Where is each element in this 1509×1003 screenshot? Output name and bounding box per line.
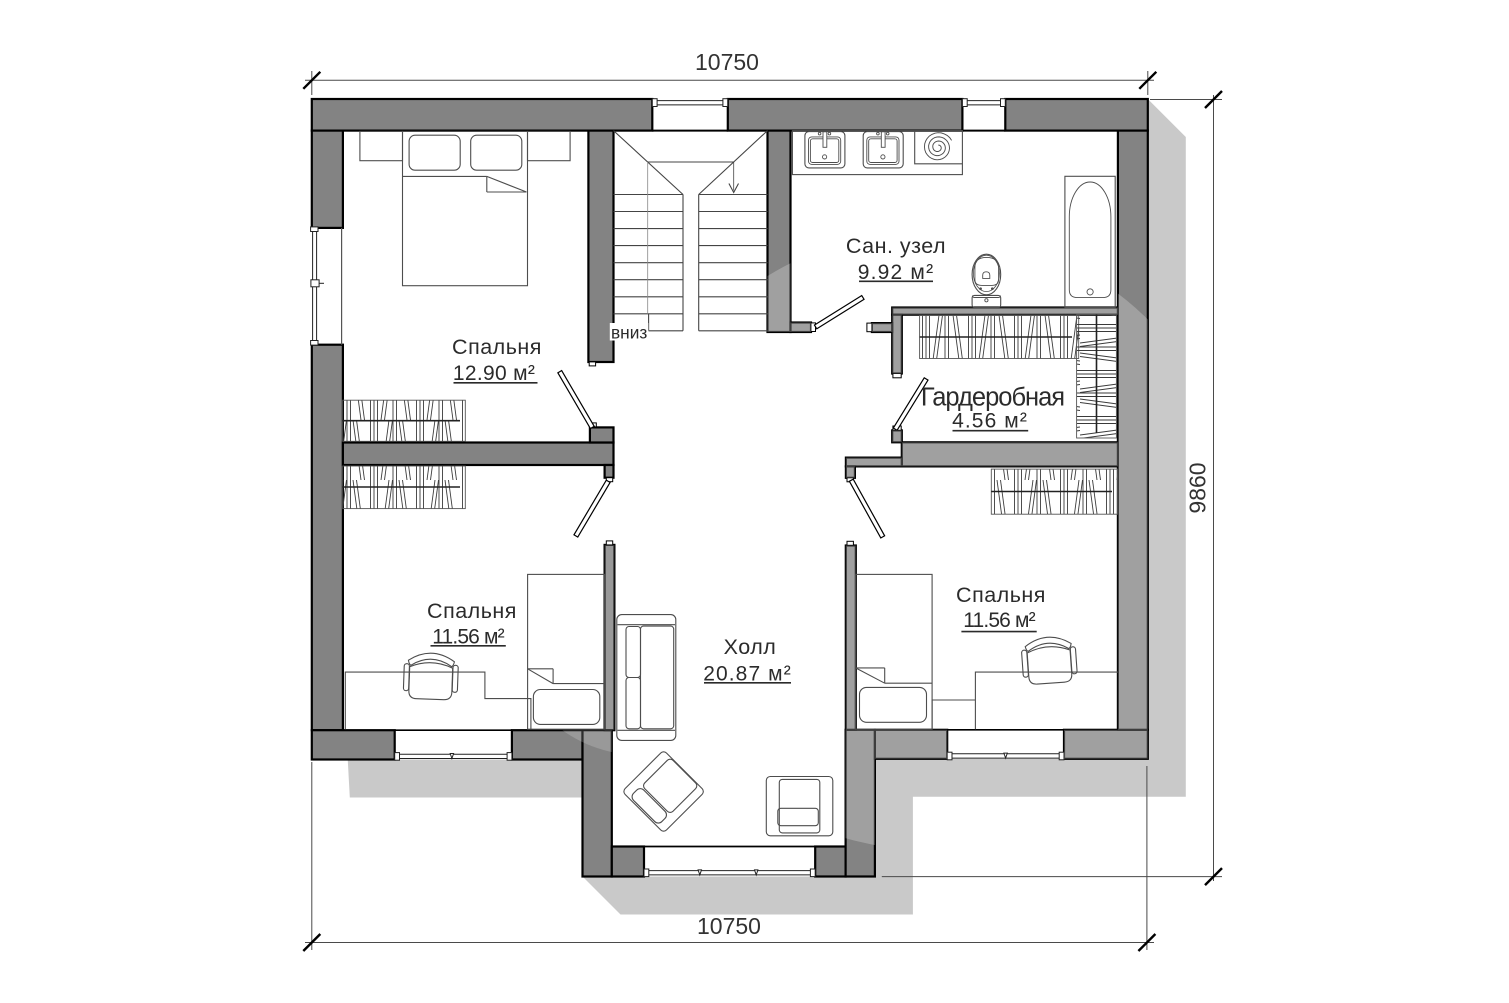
svg-text:9860: 9860: [1185, 462, 1211, 513]
svg-text:10750: 10750: [697, 913, 761, 939]
svg-text:12.90 м²: 12.90 м²: [453, 362, 535, 385]
svg-text:вниз: вниз: [611, 323, 647, 343]
svg-text:10750: 10750: [695, 49, 759, 75]
svg-text:11.56 м²: 11.56 м²: [963, 609, 1035, 632]
svg-text:Сан. узел: Сан. узел: [846, 234, 946, 258]
svg-text:Спальня: Спальня: [956, 583, 1046, 607]
svg-text:4.56 м²: 4.56 м²: [952, 410, 1028, 433]
svg-text:Спальня: Спальня: [427, 599, 517, 623]
svg-text:Гардеробная: Гардеробная: [921, 384, 1064, 412]
svg-text:Холл: Холл: [724, 635, 777, 659]
svg-text:Спальня: Спальня: [452, 335, 542, 359]
